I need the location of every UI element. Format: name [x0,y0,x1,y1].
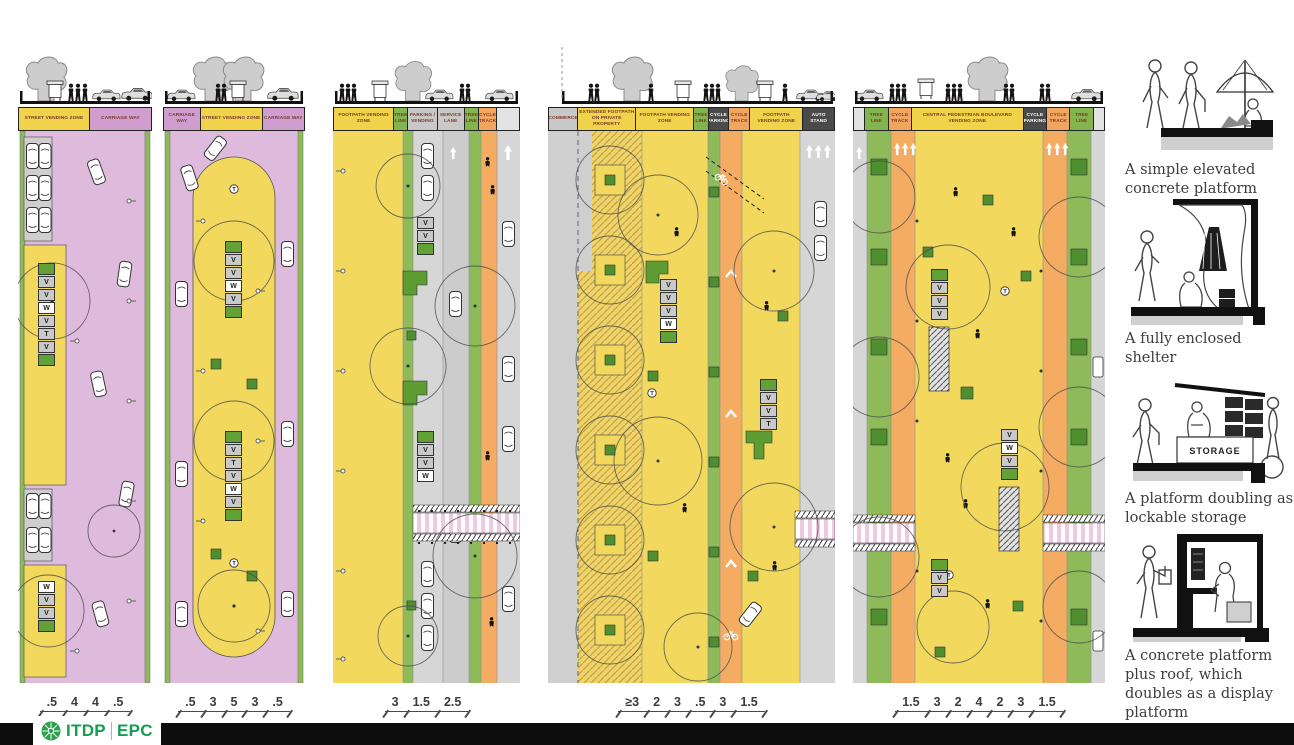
vendor-stall: V [225,496,242,508]
vendor-stall: V [931,295,948,307]
toilet-marker: T [230,185,238,193]
dimension-value: 2.5 [437,695,468,712]
plan-art: T T [853,131,1105,683]
toilet-marker: T [648,389,656,397]
vendor-stall: W [225,483,242,495]
zone-label: EXTENDED FOOTPATH ON PRIVATE PROPERTY [578,108,636,130]
vendor-stall [225,241,242,253]
vendor-platform [999,487,1019,551]
section-elevation-art [853,45,1105,107]
itdp-wordmark: ITDP [66,721,106,741]
toilet-marker: T [230,559,238,567]
vendor-stall: V [38,341,55,353]
zone-label: CYCLE TRACK [889,108,912,130]
vendor-stall: V [225,444,242,456]
zone-label: STREET VENDING ZONE [201,108,263,130]
vendor-stall: T [225,457,242,469]
dimension-line: ≥323.531.5 [548,688,835,712]
vendor-stall [931,269,948,281]
zone-label: CYCLE TRACK [479,108,497,130]
dimension-value: 3 [1010,695,1031,712]
vendor-stall: V [660,292,677,304]
vendor-stall [38,263,55,275]
street-plan-2: CARRIAGE WAYSTREET VENDING ZONECARRIAGE … [163,45,305,712]
vendor-stall-column: WVV [38,581,55,632]
dimension-value: 3 [927,695,948,712]
vendor-stall-column: VV [931,559,948,597]
vendor-stall: W [417,470,434,482]
guideline-page: STREET VENDING ZONECARRIAGE WAY [0,0,1294,745]
vendor-stall [760,379,777,391]
vendor-stall: V [225,293,242,305]
zone-label: COMMERCE [549,108,578,130]
zone-label: CENTRAL PEDESTRIAN BOULEVARD VENDING ZON… [912,108,1024,130]
vendor-stall: V [417,230,434,242]
vendor-stall [660,331,677,343]
dimension-value: 1.5 [733,695,764,712]
street-plan-1: STREET VENDING ZONECARRIAGE WAY [18,45,152,712]
toilet-marker: T [1001,287,1009,295]
vendor-stall: V [417,457,434,469]
vendor-stall-column: VVWV [225,241,242,318]
vendor-stall: V [660,279,677,291]
zone-label [1094,108,1104,130]
vendor-stall: W [660,318,677,330]
vendor-stall: V [931,585,948,597]
zone-label: TREE LINE [865,108,888,130]
vendor-stall: V [931,282,948,294]
zone-label-bar: COMMERCEEXTENDED FOOTPATH ON PRIVATE PRO… [548,107,835,131]
vendor-stall: V [760,392,777,404]
dimension-value: .5 [265,695,289,712]
street-plan-4: COMMERCEEXTENDED FOOTPATH ON PRIVATE PRO… [548,45,835,712]
section-elevation-art [163,45,305,107]
zone-label: FOOTPATH VENDING ZONE [750,108,803,130]
crossing-hatch [413,505,520,512]
dimension-value: 1.5 [895,695,926,712]
footer-bar: ITDP EPC [0,723,1294,745]
vendor-stall-column: VTVWV [225,431,242,521]
platform-type-caption: A fully enclosed shelter [1125,330,1294,368]
vendor-stall: V [225,267,242,279]
vendor-stall: T [760,418,777,430]
platform-type-shelter: A fully enclosed shelter [1125,193,1294,368]
plan-art: T [548,131,835,683]
platform-type-elevated: A simple elevated concrete platform [1125,48,1294,199]
zone-label: CARRIAGE WAY [90,108,151,130]
enclosed-shelter-illustration [1125,193,1285,325]
plan-view-5: T T VVV VWV VV [853,131,1105,683]
plan-view-4: T VVVW VVT [548,131,835,683]
vendor-stall-column: VVVW [660,279,677,343]
vendor-stall [417,243,434,255]
platform-type-caption: A concrete platform plus roof, which dou… [1125,647,1294,724]
street-section-1 [18,45,152,107]
zone-label: CYCLE TRACK [1047,108,1070,130]
section-elevation-art [18,45,152,107]
vendor-stall: V [38,276,55,288]
vendor-stall: T [38,328,55,340]
zone-label: SERVICE LANE [438,108,465,130]
vendor-stall: V [931,308,948,320]
zone-label: AUTO STAND [803,108,834,130]
dimension-value: 2 [646,695,667,712]
vendor-stall-column: VV [417,217,434,255]
vendor-stall: V [225,470,242,482]
vendor-stall [931,559,948,571]
dimension-value: ≥3 [618,695,646,712]
vendor-stall [417,431,434,443]
dimension-value: .5 [106,695,130,712]
plan-art [333,131,520,683]
epc-wordmark: EPC [117,721,153,741]
vendor-stall: V [417,217,434,229]
dimension-line: 31.52.5 [333,688,520,712]
vendor-stall: W [1001,442,1018,454]
vendor-stall: V [660,305,677,317]
plan-view-2: T T VVWV VTVWV [163,131,305,683]
vendor-stall: W [38,581,55,593]
dimension-line: .5353.5 [163,688,305,712]
vendor-platform [929,327,949,391]
zone-label-bar: STREET VENDING ZONECARRIAGE WAY [18,107,152,131]
zone-label: TREE LINE [394,108,408,130]
platform-type-storage: STORAGE A platform doubling as lockable … [1125,375,1294,528]
dimension-value: 3 [385,695,406,712]
platform-type-caption: A platform doubling as lockable storage [1125,490,1294,528]
zone-label: TREE LINE [694,108,709,130]
vendor-stall [225,431,242,443]
vendor-stall: W [38,302,55,314]
vendor-stall: V [38,594,55,606]
zone-label [854,108,865,130]
zone-label: PARKING / VENDING [408,108,437,130]
vendor-stall [225,509,242,521]
street-section-3 [333,45,520,107]
dimension-value: 1.5 [406,695,437,712]
vendor-stall-column: VVV [931,269,948,320]
vendor-stall [38,620,55,632]
vendor-stall: V [225,254,242,266]
vendor-stall: V [760,405,777,417]
zone-label: TREE LINE [1070,108,1093,130]
vendor-stall: V [1001,455,1018,467]
dimension-value: 2 [989,695,1010,712]
vendor-stall-column: VWV [1001,429,1018,480]
vendor-stall: V [38,607,55,619]
zone-label: CARRIAGE WAY [164,108,201,130]
itdp-logo-icon [41,721,61,741]
crossing-hatch [413,534,520,541]
plan-view-1: VVWVTV WVV [18,131,152,683]
dimension-value: 4 [64,695,85,712]
plan-view-3: VV VVW [333,131,520,683]
street-section-2 [163,45,305,107]
street-plan-5: TREE LINECYCLE TRACKCENTRAL PEDESTRIAN B… [853,45,1105,712]
zone-label: CYCLE TRACK [729,108,750,130]
zone-label-bar: FOOTPATH VENDING ZONETREE LINEPARKING / … [333,107,520,131]
pedestrian-crossing [795,519,835,539]
elevated-platform-illustration [1125,48,1285,156]
platform-type-roofed: A concrete platform plus roof, which dou… [1125,526,1294,724]
pedestrian-crossing [413,513,520,533]
street-section-5 [853,45,1105,107]
zone-label: STREET VENDING ZONE [19,108,90,130]
section-elevation-art [548,45,835,107]
vendor-stall-column: VVWVTV [38,263,55,366]
dimension-value: 3 [203,695,224,712]
vendor-stall: V [417,444,434,456]
dimension-value: 3 [712,695,733,712]
dimension-value: 3 [667,695,688,712]
vendor-stall: V [38,315,55,327]
dimension-value: 2 [948,695,969,712]
vendor-stall [38,354,55,366]
roofed-platform-illustration [1125,526,1285,642]
zone-label-bar: CARRIAGE WAYSTREET VENDING ZONECARRIAGE … [163,107,305,131]
street-section-4 [548,45,835,107]
vendor-stall: V [1001,429,1018,441]
dimension-value: .5 [688,695,712,712]
vendor-stall [1001,468,1018,480]
zone-label: CARRIAGE WAY [263,108,304,130]
zone-label [497,108,519,130]
dimension-line: 1.5324231.5 [853,688,1105,712]
dimension-value: 4 [85,695,106,712]
section-elevation-art [333,45,520,107]
pedestrian-crossing [1043,523,1105,543]
dimension-value: 1.5 [1031,695,1062,712]
pedestrian-crossing [853,523,915,543]
vendor-stall-column: VVW [417,431,434,482]
logo-divider [111,722,112,740]
zone-label: FOOTPATH VENDING ZONE [334,108,394,130]
zone-label: FOOTPATH VENDING ZONE [636,108,694,130]
logo-plate: ITDP EPC [33,716,161,745]
zone-label-bar: TREE LINECYCLE TRACKCENTRAL PEDESTRIAN B… [853,107,1105,131]
lockable-storage-illustration: STORAGE [1125,375,1285,485]
plan-art: T T [163,131,305,683]
zone-label: CYCLE PARKING [1024,108,1047,130]
street-plan-3: FOOTPATH VENDING ZONETREE LINEPARKING / … [333,45,520,712]
dimension-value: .5 [178,695,202,712]
dimension-value: 4 [969,695,990,712]
vendor-stall: V [931,572,948,584]
vendor-stall [225,306,242,318]
zone-label: CYCLE PARKING [709,108,729,130]
dimension-line: .544.5 [18,688,152,712]
svg-text:STORAGE: STORAGE [1189,446,1240,456]
vendor-stall-column: VVT [760,379,777,430]
vendor-stall: W [225,280,242,292]
dimension-value: .5 [40,695,64,712]
dimension-value: 3 [244,695,265,712]
dimension-value: 5 [224,695,245,712]
vendor-stall: V [38,289,55,301]
zone-label: TREE LINE [465,108,479,130]
